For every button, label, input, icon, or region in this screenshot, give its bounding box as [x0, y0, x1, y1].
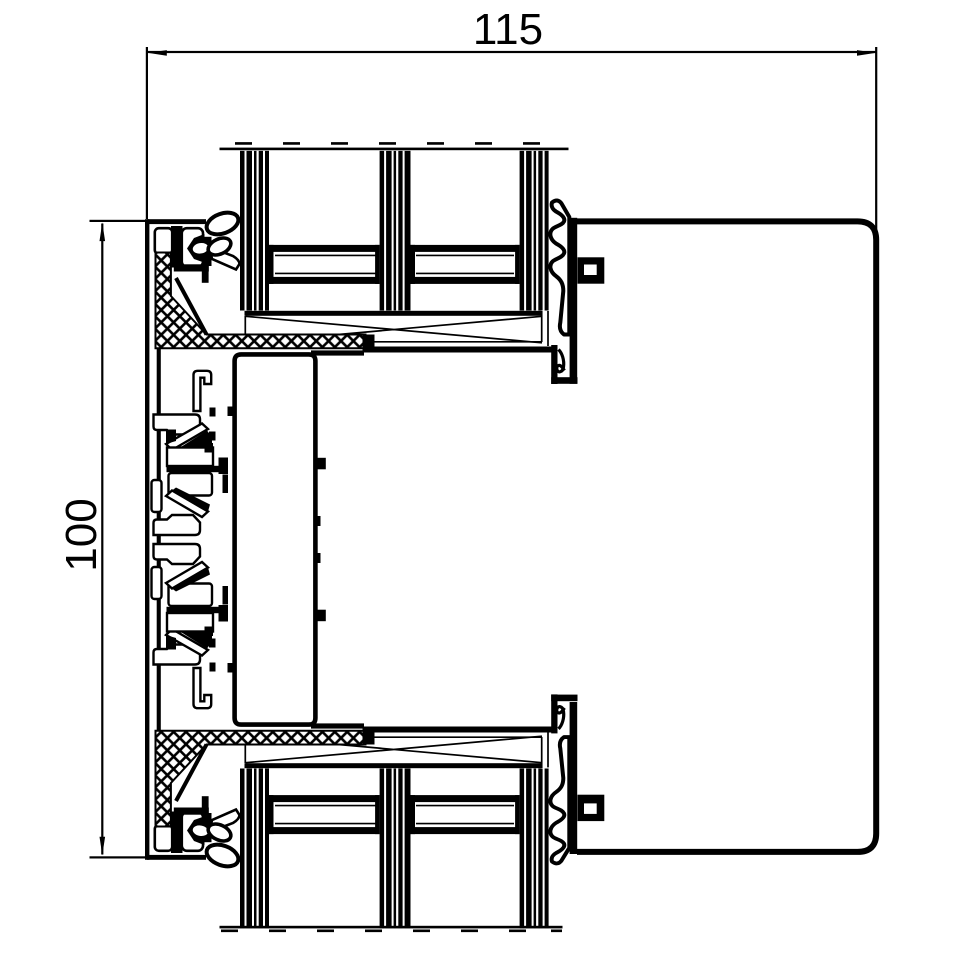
svg-text:100: 100	[57, 498, 106, 571]
svg-text:115: 115	[473, 5, 543, 54]
